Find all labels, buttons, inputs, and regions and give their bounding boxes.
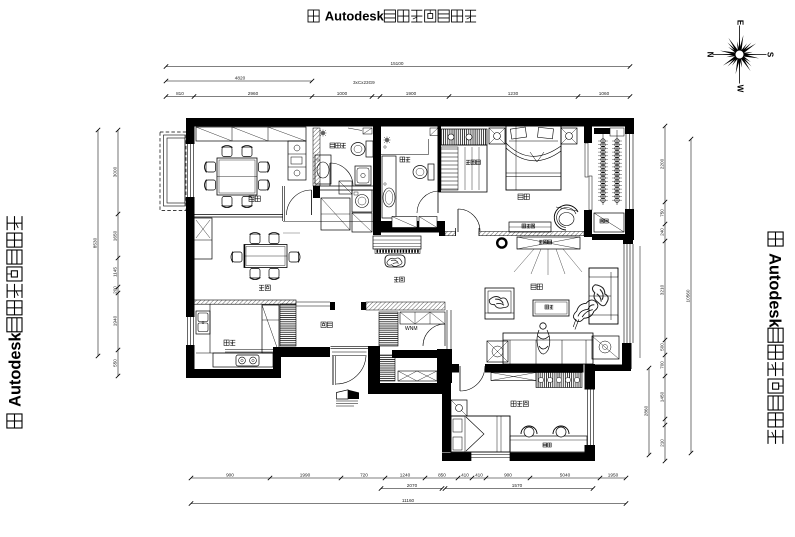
svg-text:15100: 15100	[390, 61, 403, 66]
svg-text:1940: 1940	[112, 315, 117, 326]
svg-text:550: 550	[112, 359, 117, 367]
svg-text:900: 900	[226, 472, 234, 477]
svg-text:10560: 10560	[685, 289, 690, 302]
svg-text:1230: 1230	[508, 91, 519, 96]
svg-text:W: W	[736, 85, 745, 93]
svg-text:3000: 3000	[112, 166, 117, 177]
svg-text:240: 240	[659, 228, 664, 236]
svg-text:Autodesk: Autodesk	[766, 253, 784, 328]
svg-text:S: S	[766, 52, 775, 58]
svg-text:200: 200	[112, 286, 117, 294]
svg-text:750: 750	[659, 209, 664, 217]
svg-text:3210: 3210	[659, 284, 664, 295]
svg-text:410: 410	[475, 472, 483, 477]
svg-text:1145: 1145	[112, 267, 117, 277]
svg-text:1450: 1450	[659, 391, 664, 402]
svg-text:3xCx23G9: 3xCx23G9	[353, 80, 375, 85]
svg-text:210: 210	[659, 439, 664, 447]
svg-text:410: 410	[461, 472, 469, 477]
svg-text:WNM: WNM	[405, 326, 418, 332]
svg-text:2200: 2200	[659, 158, 664, 169]
svg-text:1900: 1900	[406, 91, 417, 96]
svg-text:2960: 2960	[248, 91, 259, 96]
svg-text:N: N	[706, 52, 715, 58]
svg-text:2860: 2860	[643, 405, 648, 416]
svg-text:Autodesk: Autodesk	[325, 9, 385, 24]
svg-text:900: 900	[504, 472, 512, 477]
svg-text:2070: 2070	[407, 483, 418, 488]
svg-text:E: E	[736, 20, 745, 26]
svg-text:5040: 5040	[560, 472, 571, 477]
svg-text:8530: 8530	[92, 237, 97, 248]
svg-text:810: 810	[176, 91, 184, 96]
svg-text:1570: 1570	[512, 483, 523, 488]
svg-text:4820: 4820	[235, 75, 246, 80]
svg-text:1950: 1950	[608, 472, 619, 477]
svg-text:1060: 1060	[599, 91, 610, 96]
svg-text:1000: 1000	[337, 91, 348, 96]
svg-text:850: 850	[438, 472, 446, 477]
svg-text:720: 720	[360, 472, 368, 477]
svg-text:11160: 11160	[402, 498, 415, 503]
svg-text:1650: 1650	[112, 230, 117, 241]
svg-text:700: 700	[659, 361, 664, 369]
svg-text:1990: 1990	[300, 472, 311, 477]
svg-text:Autodesk: Autodesk	[6, 332, 24, 407]
svg-text:1240: 1240	[400, 472, 411, 477]
svg-text:500: 500	[659, 343, 664, 351]
